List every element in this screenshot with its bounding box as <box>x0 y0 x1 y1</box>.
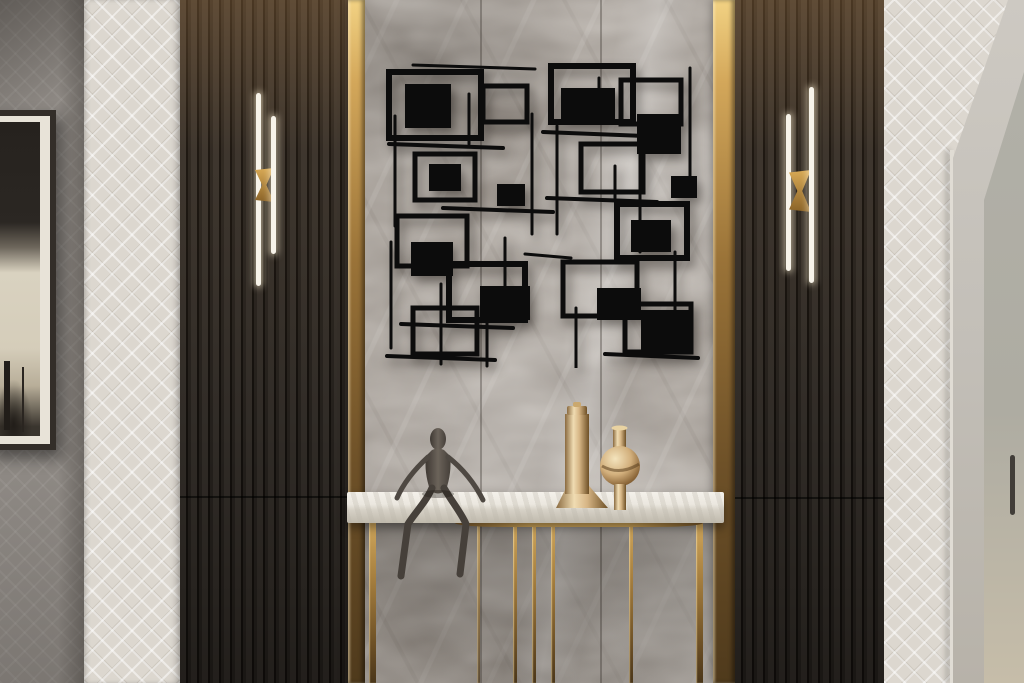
picture-mat <box>0 116 50 444</box>
framed-artwork <box>0 110 56 450</box>
vase-tall-body <box>565 414 589 494</box>
left-sconce-bar-short <box>271 116 276 254</box>
right-gold-trim <box>713 0 735 683</box>
left-gold-trim <box>348 0 365 683</box>
door-handle <box>1010 455 1015 515</box>
table-leg <box>532 523 536 683</box>
table-leg <box>551 523 555 683</box>
table-leg <box>369 523 376 683</box>
right-sconce-bar-short <box>786 114 791 271</box>
vase-tall-lid <box>567 406 587 415</box>
vase-tall-finial <box>573 402 581 407</box>
table-apron <box>455 523 703 527</box>
panel-seam <box>180 496 348 498</box>
hallway-scene <box>0 0 1024 683</box>
left-wallpaper-panel <box>84 0 180 683</box>
figurine-sculpture <box>388 424 492 606</box>
left-wall-shade <box>58 0 86 683</box>
table-leg <box>513 523 517 683</box>
right-sconce-bar-long <box>809 87 814 283</box>
door-area <box>884 0 1024 683</box>
table-leg <box>696 523 703 683</box>
vases <box>552 402 648 514</box>
panel-seam <box>735 497 884 499</box>
picture-art <box>0 122 40 436</box>
vase-round-base <box>614 484 626 510</box>
left-slat-panel <box>180 0 348 683</box>
metal-wall-art <box>385 58 700 368</box>
table-leg <box>629 523 633 683</box>
